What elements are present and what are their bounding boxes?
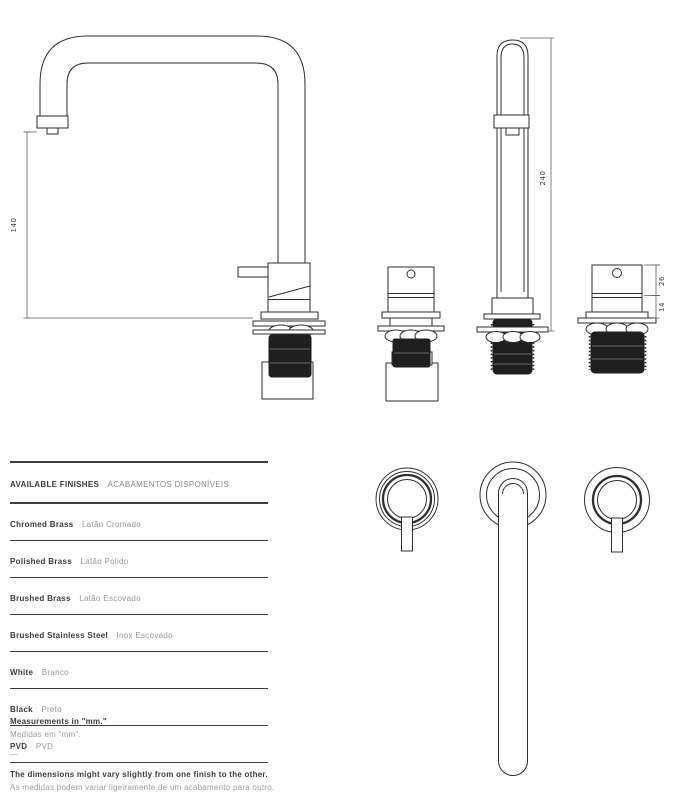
finish-name-pt: Branco xyxy=(42,668,69,677)
finish-name-en: Black xyxy=(10,705,33,714)
spout-side-view-drawing: 240 xyxy=(477,38,555,374)
plan-view-handle-left xyxy=(376,468,438,551)
finish-name-en: Chromed Brass xyxy=(10,520,73,529)
faucet-front-view-drawing: 140 xyxy=(10,36,325,399)
finishes-title-en: AVAILABLE FINISHES xyxy=(10,480,99,489)
finish-name-pt: Latão Cromado xyxy=(82,520,141,529)
finish-name-pt: Inox Escovado xyxy=(117,631,173,640)
finish-row-white: White Branco xyxy=(10,652,268,689)
measurement-note-en: Measurements in "mm." xyxy=(10,715,340,728)
finish-name-pt: Latão Polido xyxy=(80,557,128,566)
spec-sheet-page: 140 xyxy=(0,0,678,800)
dimension-label-valve-base: 14 xyxy=(658,302,666,312)
finishes-table-header: AVAILABLE FINISHES ACABAMENTOS DISPONÍVE… xyxy=(10,463,268,504)
valve-side-view-drawing xyxy=(378,267,444,401)
dimension-label-front-height: 140 xyxy=(10,218,18,233)
finish-name-pt: Preto xyxy=(41,705,62,714)
tolerance-note-pt: As medidas podem variar ligeiramente de … xyxy=(10,781,340,794)
finishes-title-pt: ACABAMENTOS DISPONÍVEIS xyxy=(108,480,229,489)
dimension-label-side-height: 240 xyxy=(539,171,547,186)
valve-side-view-2-drawing: 26 14 xyxy=(578,265,666,373)
dimension-valve-heights: 26 14 xyxy=(644,265,666,318)
finish-row-brushed-brass: Brushed Brass Latão Escovado xyxy=(10,578,268,615)
dimension-label-valve-body: 26 xyxy=(658,276,666,286)
finish-row-chromed-brass: Chromed Brass Latão Cromado xyxy=(10,504,268,541)
finish-name-pt: Latão Escovado xyxy=(79,594,141,603)
notes-divider: — xyxy=(10,748,340,761)
finish-row-brushed-stainless-steel: Brushed Stainless Steel Inox Escovado xyxy=(10,615,268,652)
plan-view-handle-right xyxy=(585,468,650,553)
tolerance-note-en: The dimensions might vary slightly from … xyxy=(10,768,340,781)
dimension-front-height: 140 xyxy=(10,132,253,318)
finish-name-en: Brushed Stainless Steel xyxy=(10,631,108,640)
finish-name-en: Brushed Brass xyxy=(10,594,71,603)
measurement-note-pt: Medidas em "mm". xyxy=(10,728,340,741)
notes-block: Measurements in "mm." Medidas em "mm". —… xyxy=(10,715,340,794)
finish-name-en: White xyxy=(10,668,33,677)
finish-row-polished-brass: Polished Brass Latão Polido xyxy=(10,541,268,578)
plan-view-spout xyxy=(480,462,546,776)
finish-name-en: Polished Brass xyxy=(10,557,72,566)
